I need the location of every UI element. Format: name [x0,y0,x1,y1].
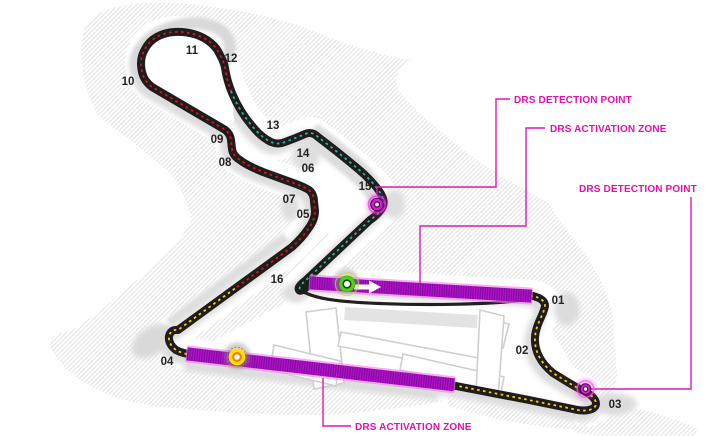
svg-text:DRS ACTIVATION ZONE: DRS ACTIVATION ZONE [355,422,472,433]
svg-text:DRS ACTIVATION ZONE: DRS ACTIVATION ZONE [550,124,667,135]
svg-text:DRS DETECTION POINT: DRS DETECTION POINT [579,184,697,195]
svg-text:DRS DETECTION POINT: DRS DETECTION POINT [514,95,632,106]
svg-text:02: 02 [516,345,529,357]
svg-text:06: 06 [302,163,315,175]
svg-text:13: 13 [267,120,280,132]
svg-text:15: 15 [359,181,372,193]
svg-text:10: 10 [122,76,135,88]
svg-text:11: 11 [186,45,199,57]
svg-text:16: 16 [271,274,284,286]
svg-text:04: 04 [161,356,174,368]
svg-text:09: 09 [211,134,224,146]
svg-text:12: 12 [225,53,238,65]
svg-text:05: 05 [297,209,310,221]
svg-text:08: 08 [219,157,232,169]
svg-text:01: 01 [552,295,565,307]
svg-text:14: 14 [297,148,310,160]
svg-text:03: 03 [609,399,622,411]
svg-text:07: 07 [283,194,296,206]
